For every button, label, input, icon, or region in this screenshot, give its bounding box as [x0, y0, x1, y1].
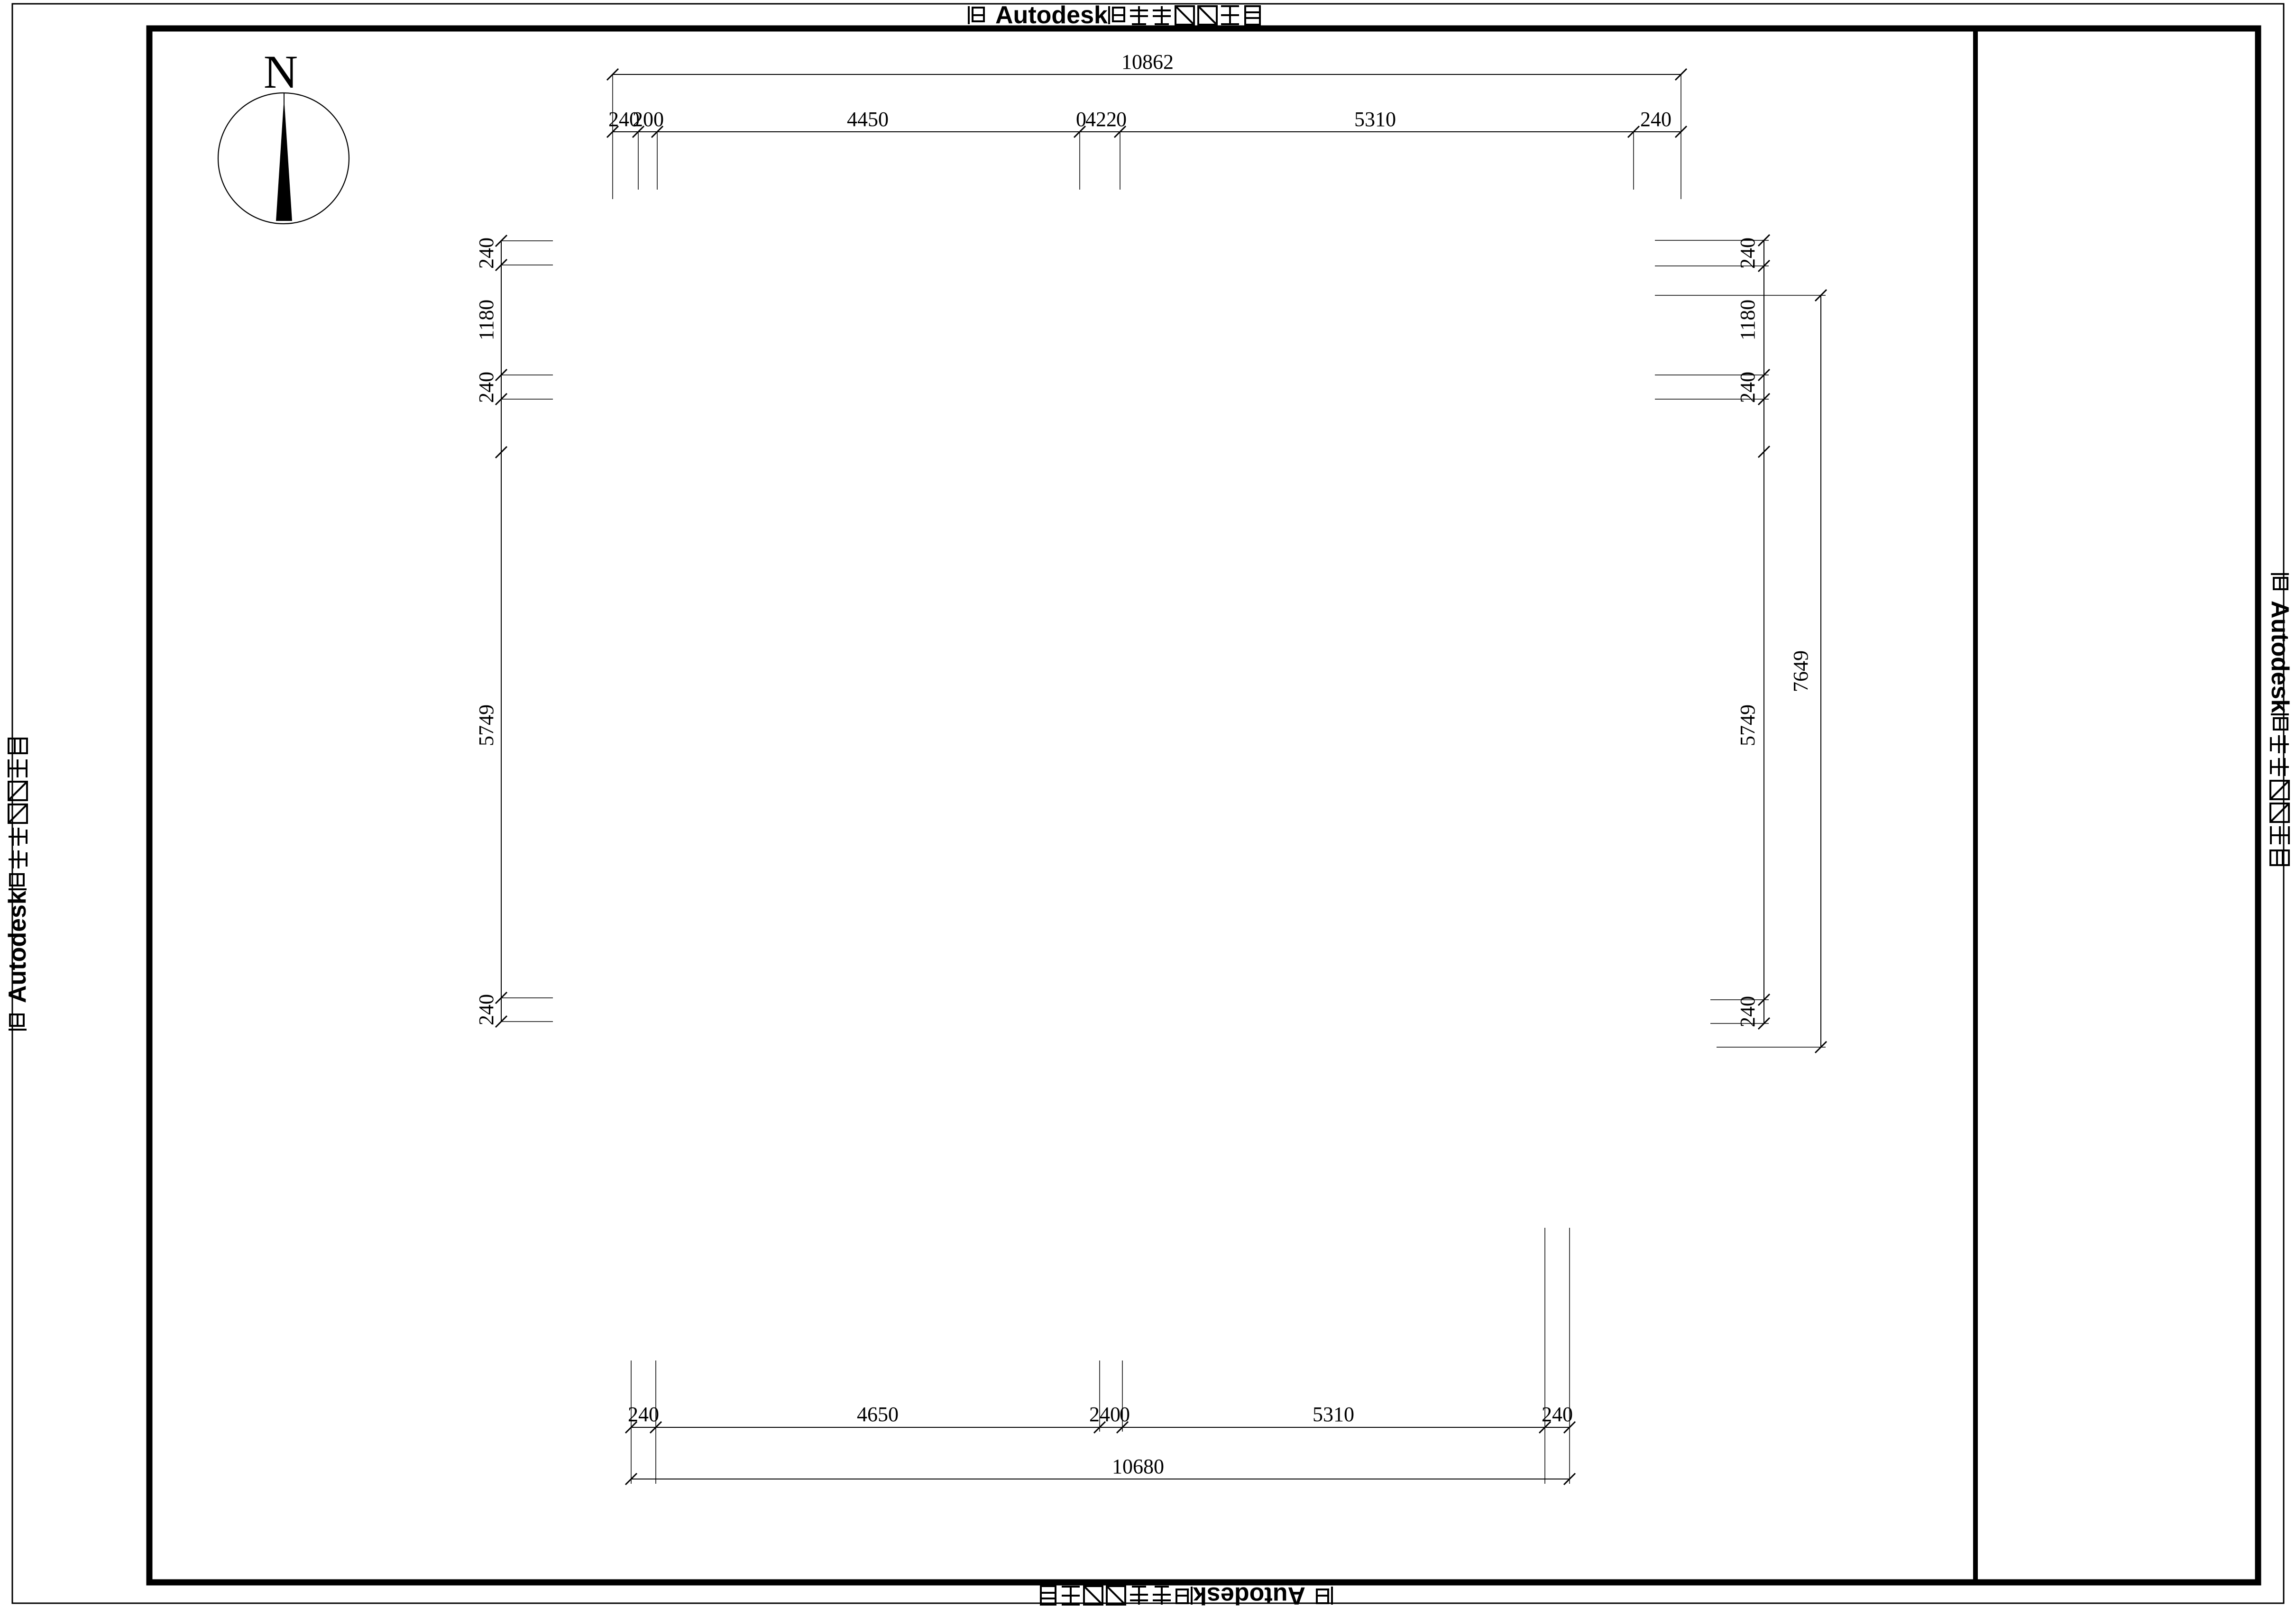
svg-text:240: 240	[475, 994, 498, 1025]
svg-text:200: 200	[633, 108, 664, 131]
svg-text:240: 240	[475, 372, 498, 403]
svg-text:5310: 5310	[1354, 108, 1396, 131]
svg-text:240: 240	[1089, 1403, 1120, 1426]
svg-text:4450: 4450	[847, 108, 889, 131]
svg-text:240: 240	[475, 237, 498, 269]
svg-text:240: 240	[1736, 237, 1759, 269]
svg-text:Autodesk: Autodesk	[2266, 601, 2294, 713]
svg-text:240: 240	[1736, 996, 1759, 1027]
svg-text:Autodesk: Autodesk	[995, 1, 1108, 29]
svg-text:422: 422	[1085, 108, 1117, 131]
svg-text:240: 240	[1736, 372, 1759, 403]
svg-text:240: 240	[628, 1403, 659, 1426]
svg-text:0: 0	[1120, 1403, 1130, 1426]
svg-text:N: N	[264, 46, 298, 98]
svg-text:5310: 5310	[1313, 1403, 1354, 1426]
svg-text:5749: 5749	[475, 704, 498, 746]
svg-text:10862: 10862	[1121, 50, 1174, 73]
svg-text:1180: 1180	[1736, 300, 1759, 340]
svg-text:240: 240	[1640, 108, 1671, 131]
svg-text:7649: 7649	[1789, 650, 1812, 692]
svg-text:5749: 5749	[1736, 704, 1759, 746]
svg-text:4650: 4650	[857, 1403, 899, 1426]
svg-text:0: 0	[1116, 108, 1127, 131]
svg-text:Autodesk: Autodesk	[1193, 1582, 1305, 1607]
svg-text:10680: 10680	[1112, 1455, 1164, 1478]
svg-text:0: 0	[1076, 108, 1086, 131]
svg-text:Autodesk: Autodesk	[4, 891, 31, 1003]
svg-text:240: 240	[1542, 1403, 1573, 1426]
svg-text:1180: 1180	[475, 300, 498, 340]
